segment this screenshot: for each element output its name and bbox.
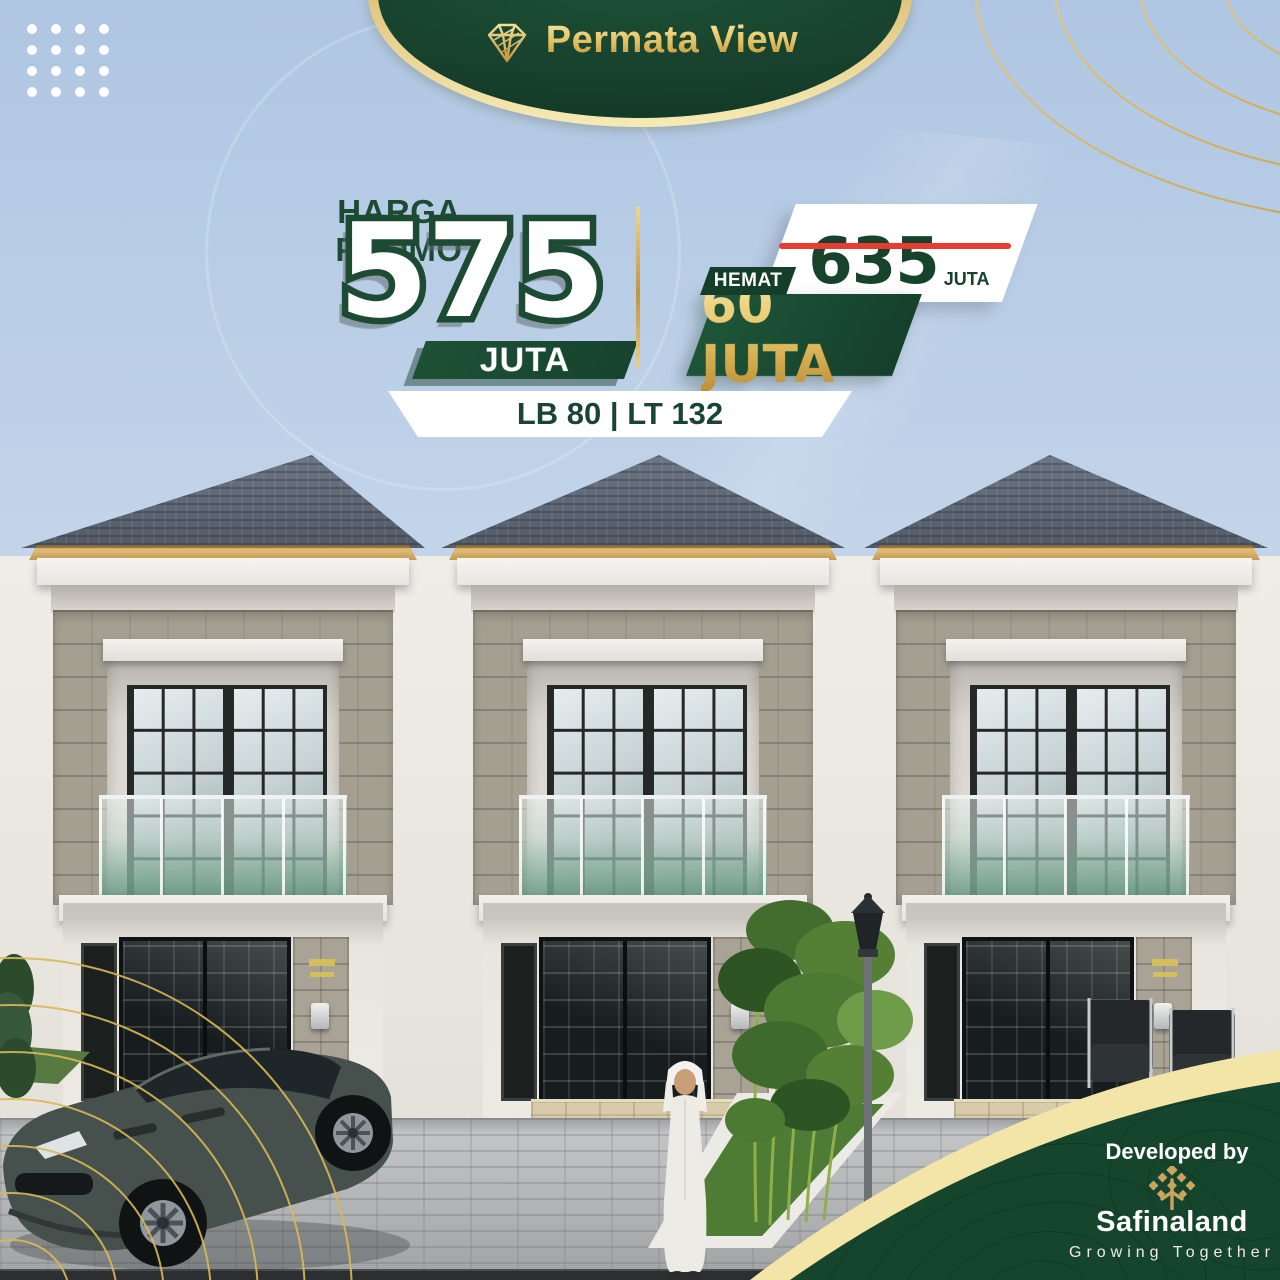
developer-name: Safinaland bbox=[1056, 1206, 1280, 1239]
safinaland-tree-icon bbox=[1146, 1166, 1198, 1210]
developed-by-label: Developed by bbox=[1082, 1139, 1272, 1165]
promo-poster: Permata View HARGA PROMO 575 575 JUTA 63… bbox=[0, 0, 1280, 1280]
developer-panel bbox=[0, 0, 1280, 1280]
developer-tagline: Growing Together bbox=[1044, 1244, 1280, 1262]
